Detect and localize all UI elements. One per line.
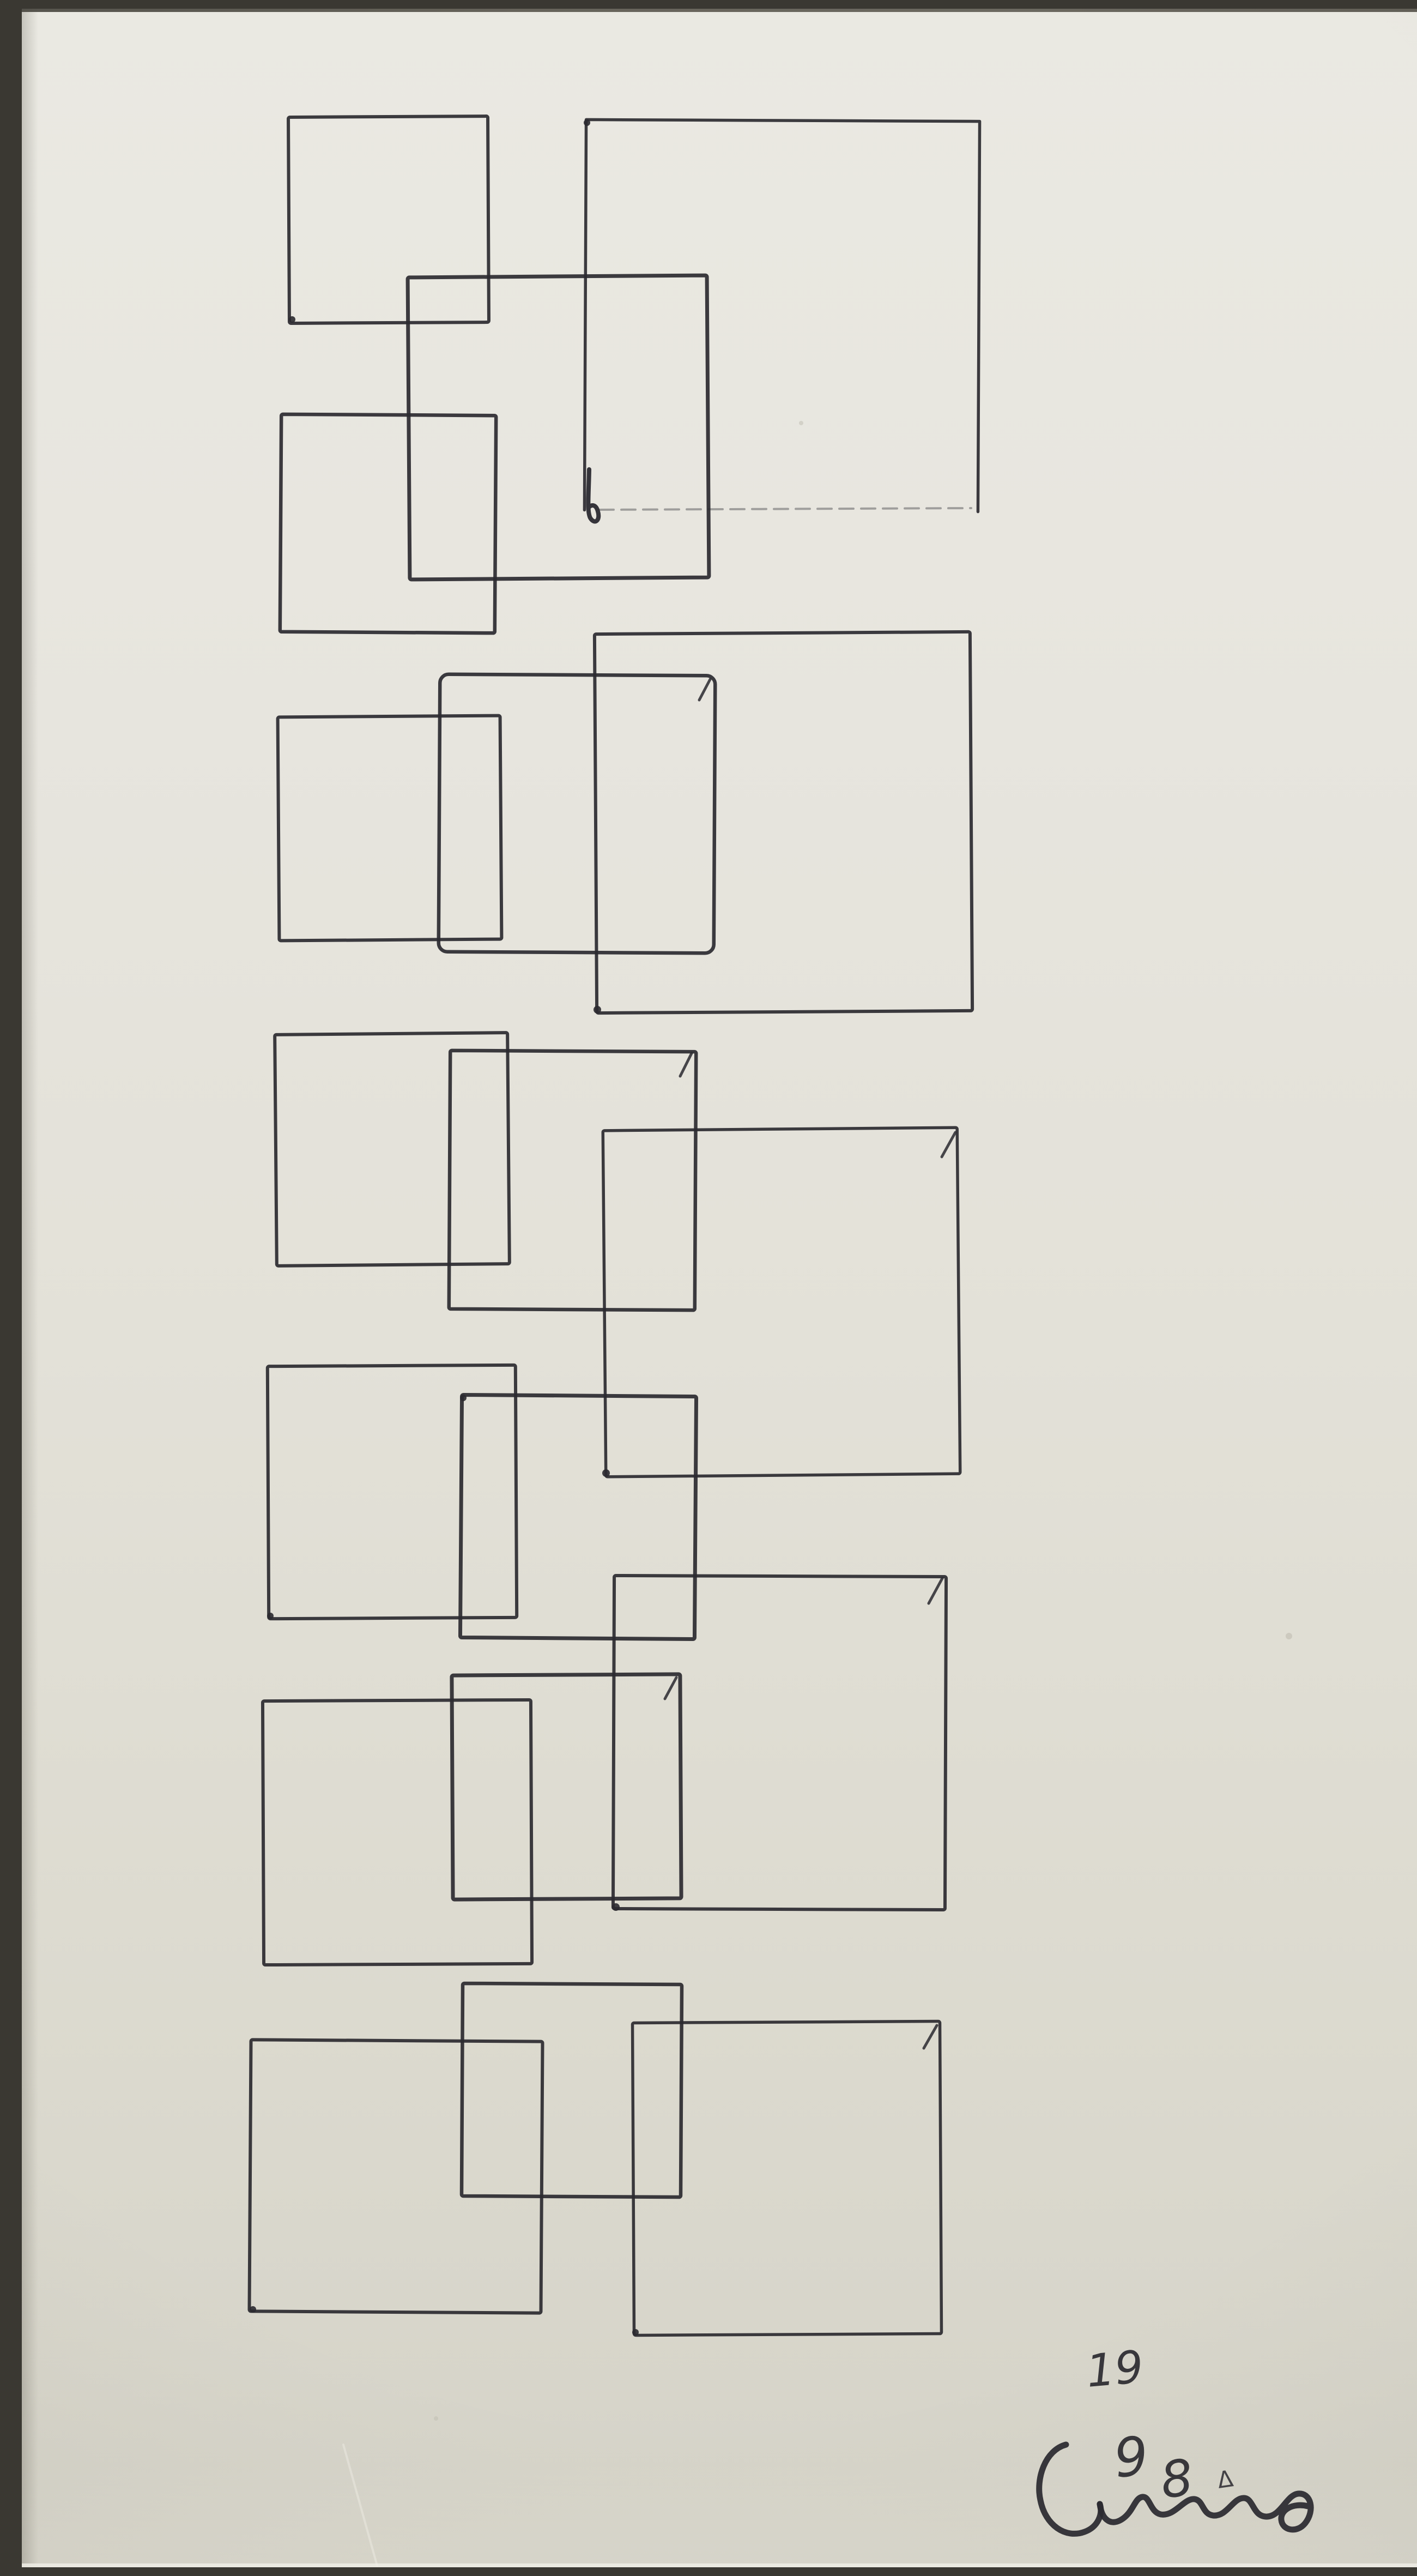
corner-tick-1 xyxy=(680,1053,692,1076)
square-g3-big-right xyxy=(603,1127,960,1477)
square-g3-middle xyxy=(449,1051,696,1310)
square-g2-left xyxy=(278,716,502,941)
signature-stroke-0 xyxy=(1039,2445,1101,2533)
square-g5-middle xyxy=(452,1674,681,1899)
ink-blob-8 xyxy=(632,2329,639,2336)
paper-crease xyxy=(343,2445,377,2566)
square-g1-left-bottom xyxy=(280,414,496,633)
corner-tick-3 xyxy=(929,1578,942,1603)
paper-speck-1 xyxy=(799,421,803,425)
ink-blob-3 xyxy=(602,1469,610,1477)
ink-blob-7 xyxy=(250,2306,256,2313)
ink-blob-0 xyxy=(289,316,295,323)
ink-blob-6 xyxy=(612,1903,620,1911)
square-g4-left xyxy=(268,1365,517,1619)
square-g4-middle xyxy=(460,1395,696,1639)
corner-tick-0 xyxy=(699,679,710,700)
date-digit-0: 19 xyxy=(1084,2341,1145,2398)
square-g6-middle xyxy=(462,1983,682,2197)
ink-blob-2 xyxy=(594,1006,601,1013)
signature-stroke-1 xyxy=(1100,2494,1311,2530)
paper-speck-0 xyxy=(1286,1633,1292,1639)
square-g1-left-top xyxy=(288,116,489,323)
square-g6-big-right xyxy=(633,2022,942,2336)
corner-tick-2 xyxy=(942,1132,955,1157)
date-digit-1: 9 xyxy=(1111,2425,1152,2490)
paper-speck-2 xyxy=(434,2416,438,2421)
corner-tick-5 xyxy=(924,2025,937,2048)
artwork-photo: 1998Δ xyxy=(22,9,1417,2567)
date-small-mark: Δ xyxy=(1216,2465,1236,2494)
ink-blob-1 xyxy=(584,119,590,126)
pen-hook-mark xyxy=(588,469,598,521)
corner-tick-4 xyxy=(665,1678,676,1699)
ink-blob-5 xyxy=(460,1395,467,1401)
faint-bottom-stroke xyxy=(599,508,971,510)
square-g3-left xyxy=(275,1033,510,1266)
square-g2-big-right xyxy=(595,632,972,1013)
ink-blob-4 xyxy=(267,1613,274,1619)
square-g5-big-right xyxy=(613,1576,946,1910)
artwork-canvas: 1998Δ xyxy=(22,9,1417,2567)
square-g5-left xyxy=(263,1700,532,1965)
square-g6-left xyxy=(249,2040,542,2313)
square-g1-big-right xyxy=(584,119,979,511)
